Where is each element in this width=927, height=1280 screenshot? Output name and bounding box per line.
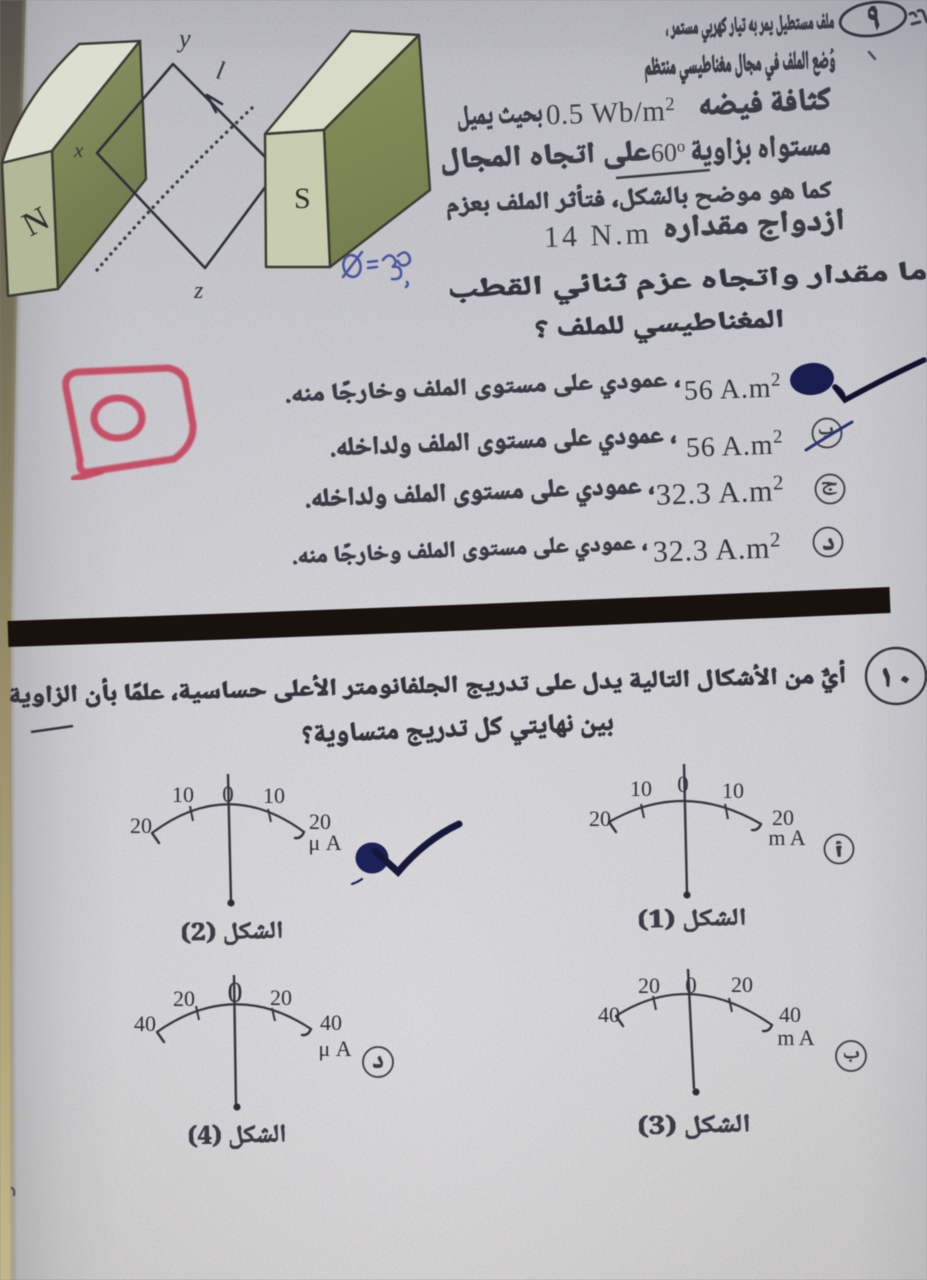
svg-text:x: x [73, 138, 84, 162]
svg-text:0: 0 [685, 973, 697, 998]
svg-text:20: 20 [638, 973, 660, 998]
svg-text:μ A: μ A [308, 830, 341, 855]
svg-text:m A: m A [768, 825, 805, 850]
svg-text:40: 40 [320, 1010, 342, 1035]
svg-text:0: 0 [228, 976, 243, 1009]
svg-text:40: 40 [779, 1002, 801, 1027]
svg-text:m A: m A [777, 1025, 814, 1050]
svg-text:10: 10 [630, 776, 652, 801]
svg-text:y: y [176, 24, 191, 53]
svg-text:10: 10 [263, 783, 285, 808]
svg-text:20: 20 [589, 806, 611, 831]
svg-text:0: 0 [222, 782, 234, 807]
svg-text:S: S [294, 182, 311, 215]
svg-text:20: 20 [731, 972, 753, 997]
svg-text:20: 20 [173, 986, 195, 1011]
svg-text:0: 0 [677, 772, 689, 797]
svg-text:0.5 Wb/m2: 0.5 Wb/m2 [545, 94, 676, 131]
svg-text:14 N.m: 14 N.m [543, 217, 652, 254]
svg-text:40: 40 [598, 1002, 620, 1027]
svg-text:20: 20 [130, 813, 152, 838]
svg-text:56 A.m2: 56 A.m2 [685, 426, 784, 463]
svg-text:40: 40 [134, 1011, 156, 1036]
svg-text:μ A: μ A [318, 1036, 351, 1061]
svg-text:10: 10 [722, 778, 744, 803]
svg-text:z: z [193, 278, 204, 304]
svg-text:56 A.m2: 56 A.m2 [683, 369, 782, 406]
svg-text:10: 10 [172, 782, 194, 807]
svg-text:20: 20 [270, 985, 292, 1010]
